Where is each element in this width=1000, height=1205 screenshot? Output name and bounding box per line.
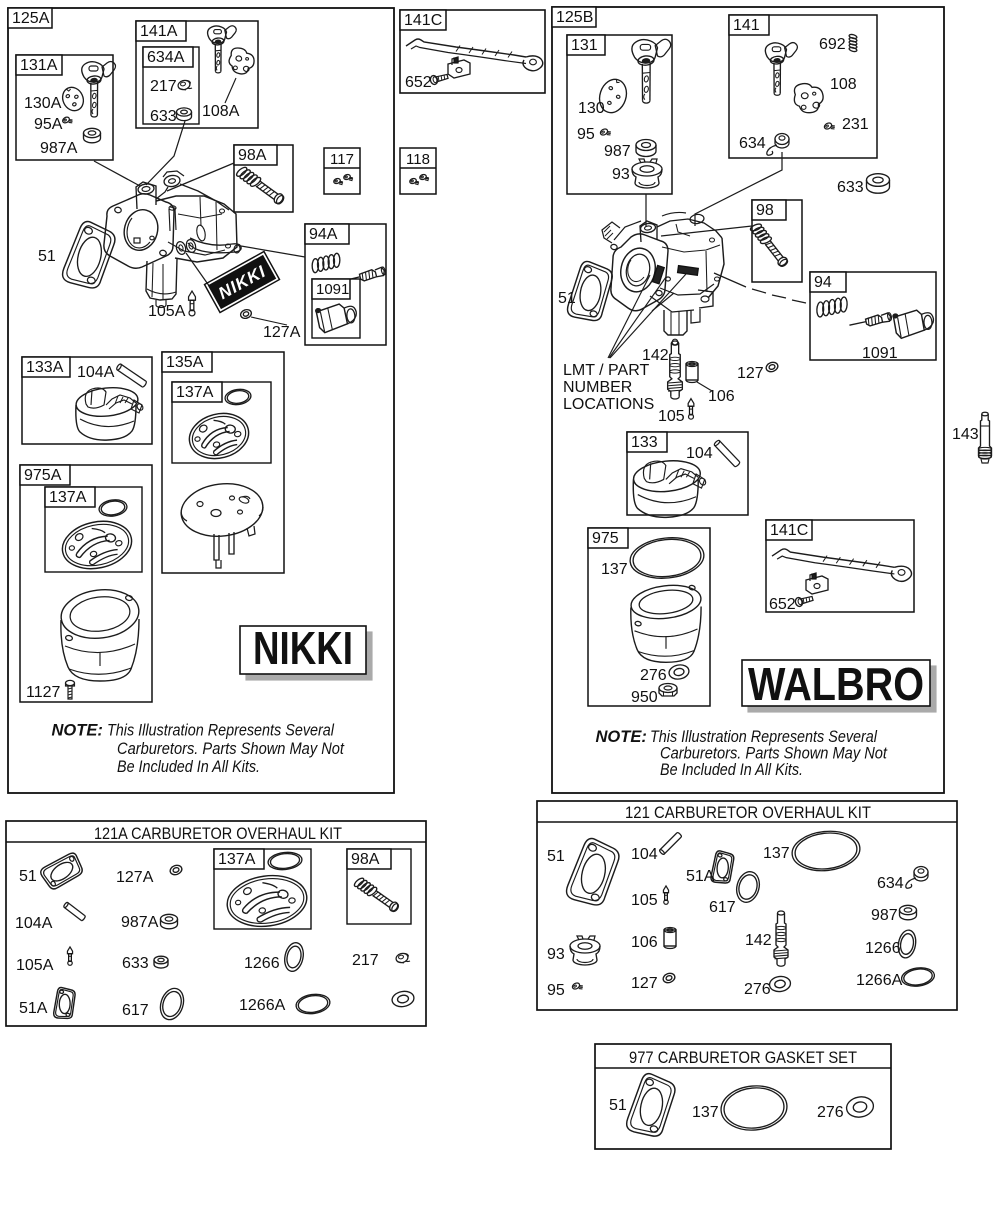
svg-text:131: 131 — [571, 37, 598, 54]
svg-text:108A: 108A — [202, 103, 240, 120]
svg-text:106: 106 — [708, 388, 735, 405]
svg-text:141C: 141C — [404, 12, 442, 29]
svg-text:NIKKI: NIKKI — [253, 622, 353, 674]
svg-text:633: 633 — [150, 108, 177, 125]
svg-text:105A: 105A — [16, 957, 54, 974]
svg-text:975: 975 — [592, 530, 619, 547]
svg-text:LMT / PART: LMT / PART — [563, 362, 649, 379]
svg-text:987: 987 — [871, 907, 898, 924]
svg-text:118: 118 — [406, 151, 430, 168]
svg-text:142: 142 — [642, 347, 669, 364]
svg-text:95: 95 — [547, 982, 565, 999]
svg-text:1266A: 1266A — [239, 997, 286, 1014]
svg-text:51A: 51A — [19, 1000, 48, 1017]
svg-text:987A: 987A — [121, 914, 159, 931]
svg-text:137A: 137A — [49, 489, 87, 506]
svg-text:51: 51 — [558, 290, 576, 307]
svg-text:NUMBER: NUMBER — [563, 379, 632, 396]
svg-text:105A: 105A — [148, 303, 186, 320]
svg-text:98: 98 — [756, 202, 774, 219]
svg-text:125A: 125A — [12, 10, 50, 27]
svg-text:NOTE:: NOTE: — [52, 722, 103, 740]
svg-text:104: 104 — [631, 846, 658, 863]
svg-text:977 CARBURETOR GASKET SET: 977 CARBURETOR GASKET SET — [629, 1048, 857, 1067]
svg-text:276: 276 — [744, 981, 771, 998]
svg-text:131A: 131A — [20, 57, 58, 74]
svg-text:105: 105 — [631, 892, 658, 909]
svg-text:1266A: 1266A — [856, 972, 903, 989]
svg-text:975A: 975A — [24, 467, 62, 484]
svg-text:141A: 141A — [140, 23, 178, 40]
svg-text:692: 692 — [819, 36, 846, 53]
svg-text:137: 137 — [692, 1104, 719, 1121]
svg-text:276: 276 — [817, 1104, 844, 1121]
svg-text:987: 987 — [604, 143, 631, 160]
svg-text:617: 617 — [709, 899, 736, 916]
svg-text:634: 634 — [877, 875, 904, 892]
svg-text:51: 51 — [38, 248, 56, 265]
svg-text:Be Included In All Kits.: Be Included In All Kits. — [660, 761, 803, 779]
svg-text:98A: 98A — [238, 147, 267, 164]
svg-text:1266: 1266 — [244, 955, 280, 972]
svg-text:135A: 135A — [166, 354, 204, 371]
svg-text:137A: 137A — [176, 384, 214, 401]
svg-text:1127: 1127 — [26, 684, 61, 701]
svg-text:617: 617 — [122, 1002, 149, 1019]
svg-text:127: 127 — [631, 975, 658, 992]
svg-text:117: 117 — [330, 151, 354, 168]
svg-text:51: 51 — [609, 1097, 627, 1114]
svg-text:98A: 98A — [351, 851, 380, 868]
svg-text:133: 133 — [631, 434, 658, 451]
svg-text:94A: 94A — [309, 226, 338, 243]
svg-text:633: 633 — [837, 179, 864, 196]
svg-text:141C: 141C — [770, 522, 808, 539]
svg-text:95: 95 — [577, 126, 595, 143]
svg-text:130: 130 — [578, 100, 605, 117]
svg-text:652: 652 — [769, 596, 796, 613]
svg-text:142: 142 — [745, 932, 772, 949]
svg-text:141: 141 — [733, 17, 760, 34]
svg-text:1091: 1091 — [862, 345, 898, 362]
svg-text:51: 51 — [19, 868, 37, 885]
svg-text:104A: 104A — [15, 915, 53, 932]
svg-text:95A: 95A — [34, 116, 63, 133]
svg-text:105: 105 — [658, 408, 685, 425]
svg-text:137: 137 — [601, 561, 628, 578]
svg-text:950: 950 — [631, 689, 658, 706]
svg-text:NOTE:: NOTE: — [596, 728, 647, 746]
svg-text:127: 127 — [737, 365, 764, 382]
svg-text:This Illustration Represents S: This Illustration Represents Several — [650, 728, 878, 746]
svg-text:93: 93 — [612, 166, 630, 183]
svg-text:104A: 104A — [77, 364, 115, 381]
svg-text:133A: 133A — [26, 359, 64, 376]
svg-text:127A: 127A — [116, 869, 154, 886]
svg-text:217: 217 — [352, 952, 379, 969]
svg-text:106: 106 — [631, 934, 658, 951]
svg-text:634A: 634A — [147, 49, 185, 66]
svg-text:137A: 137A — [218, 851, 256, 868]
svg-text:1266: 1266 — [865, 940, 901, 957]
svg-text:130A: 130A — [24, 95, 62, 112]
svg-text:143: 143 — [952, 426, 979, 443]
svg-text:121A CARBURETOR OVERHAUL KIT: 121A CARBURETOR OVERHAUL KIT — [94, 824, 342, 843]
svg-text:LOCATIONS: LOCATIONS — [563, 396, 654, 413]
svg-text:276: 276 — [640, 667, 667, 684]
svg-text:94: 94 — [814, 274, 832, 291]
svg-text:127A: 127A — [263, 324, 301, 341]
svg-text:217: 217 — [150, 78, 177, 95]
svg-text:51: 51 — [547, 848, 565, 865]
svg-text:634: 634 — [739, 135, 766, 152]
svg-text:231: 231 — [842, 116, 869, 133]
svg-text:Carburetors. Parts Shown May N: Carburetors. Parts Shown May Not — [660, 745, 888, 763]
svg-text:987A: 987A — [40, 140, 78, 157]
svg-text:108: 108 — [830, 76, 857, 93]
svg-text:Be Included In All Kits.: Be Included In All Kits. — [117, 758, 260, 776]
svg-text:125B: 125B — [556, 9, 593, 26]
svg-text:93: 93 — [547, 946, 565, 963]
svg-text:1091: 1091 — [316, 281, 349, 298]
svg-text:137: 137 — [763, 845, 790, 862]
svg-text:652: 652 — [405, 74, 432, 91]
svg-text:633: 633 — [122, 955, 149, 972]
svg-text:This Illustration Represents S: This Illustration Represents Several — [107, 722, 335, 740]
svg-text:104: 104 — [686, 445, 713, 462]
svg-text:Carburetors. Parts Shown May N: Carburetors. Parts Shown May Not — [117, 740, 345, 758]
svg-text:WALBRO: WALBRO — [748, 658, 924, 710]
svg-text:121 CARBURETOR OVERHAUL KIT: 121 CARBURETOR OVERHAUL KIT — [625, 803, 871, 822]
